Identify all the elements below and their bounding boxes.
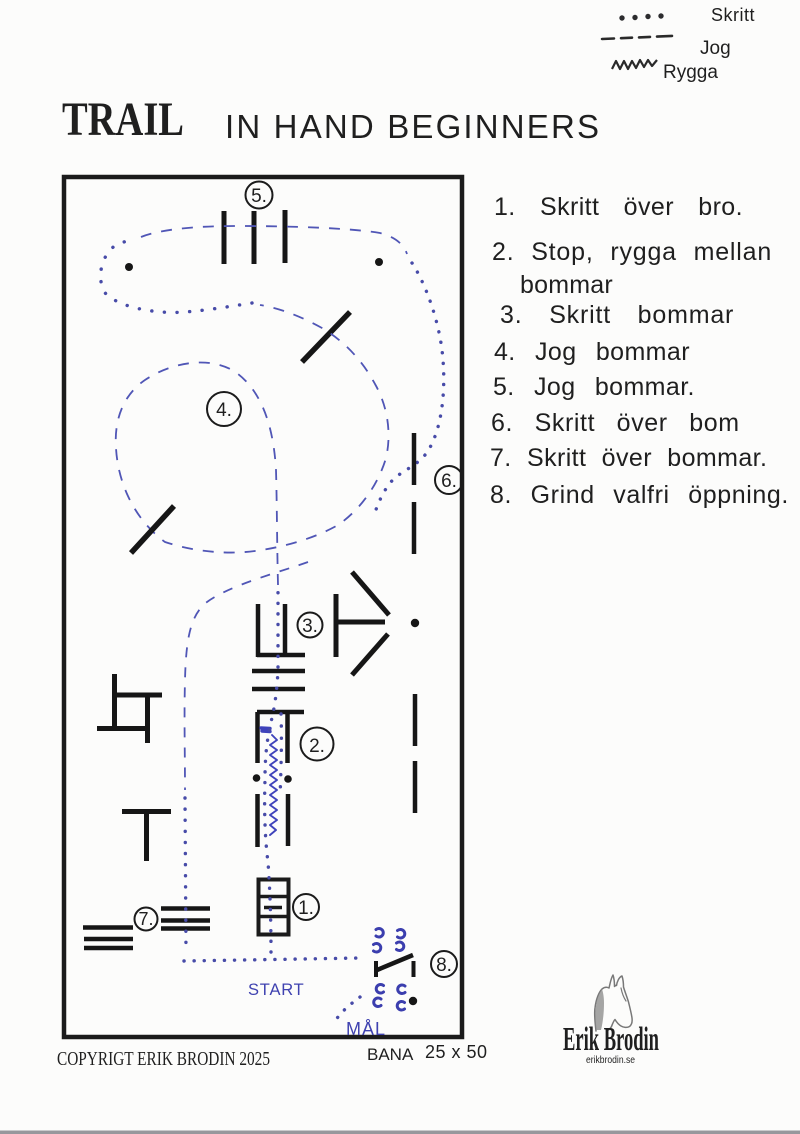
svg-text:MÅL: MÅL — [346, 1019, 386, 1039]
svg-text:erikbrodin.se: erikbrodin.se — [586, 1055, 635, 1066]
svg-text:IN HAND BEGINNERS: IN HAND BEGINNERS — [225, 108, 599, 145]
svg-text:2. Stop, rygga mellan: 2. Stop, rygga mellan — [492, 238, 772, 266]
svg-text:Erik Brodin: Erik Brodin — [563, 1021, 659, 1058]
svg-text:5.: 5. — [251, 186, 267, 207]
svg-text:6. Skritt över bom: 6. Skritt över bom — [491, 409, 740, 437]
svg-text:5. Jog bommar.: 5. Jog bommar. — [493, 373, 695, 401]
svg-text:BANA: BANA — [367, 1045, 414, 1064]
svg-text:8. Grind valfri öppning.: 8. Grind valfri öppning. — [490, 481, 789, 509]
svg-text:8.: 8. — [436, 955, 452, 976]
svg-text:25 x 50: 25 x 50 — [425, 1042, 488, 1062]
svg-text:3. Skritt bommar: 3. Skritt bommar — [500, 301, 734, 329]
svg-text:Rygga: Rygga — [663, 62, 718, 83]
svg-text:2.: 2. — [309, 736, 325, 757]
svg-text:1. Skritt över bro.: 1. Skritt över bro. — [494, 193, 743, 221]
svg-text:bommar: bommar — [520, 271, 613, 299]
svg-text:4.: 4. — [216, 400, 232, 421]
svg-text:7.: 7. — [138, 909, 153, 929]
svg-text:Skritt: Skritt — [711, 5, 755, 25]
svg-text:START: START — [248, 981, 305, 999]
svg-text:1.: 1. — [298, 898, 314, 919]
svg-text:7. Skritt över bommar.: 7. Skritt över bommar. — [490, 444, 767, 472]
svg-text:TRAIL: TRAIL — [62, 93, 184, 146]
svg-text:6.: 6. — [441, 471, 457, 492]
svg-text:Jog: Jog — [700, 38, 731, 59]
svg-text:COPYRIGT ERIK BRODIN 2025: COPYRIGT ERIK BRODIN 2025 — [57, 1048, 270, 1070]
svg-text:4. Jog bommar: 4. Jog bommar — [494, 338, 690, 366]
svg-text:3.: 3. — [302, 616, 318, 637]
